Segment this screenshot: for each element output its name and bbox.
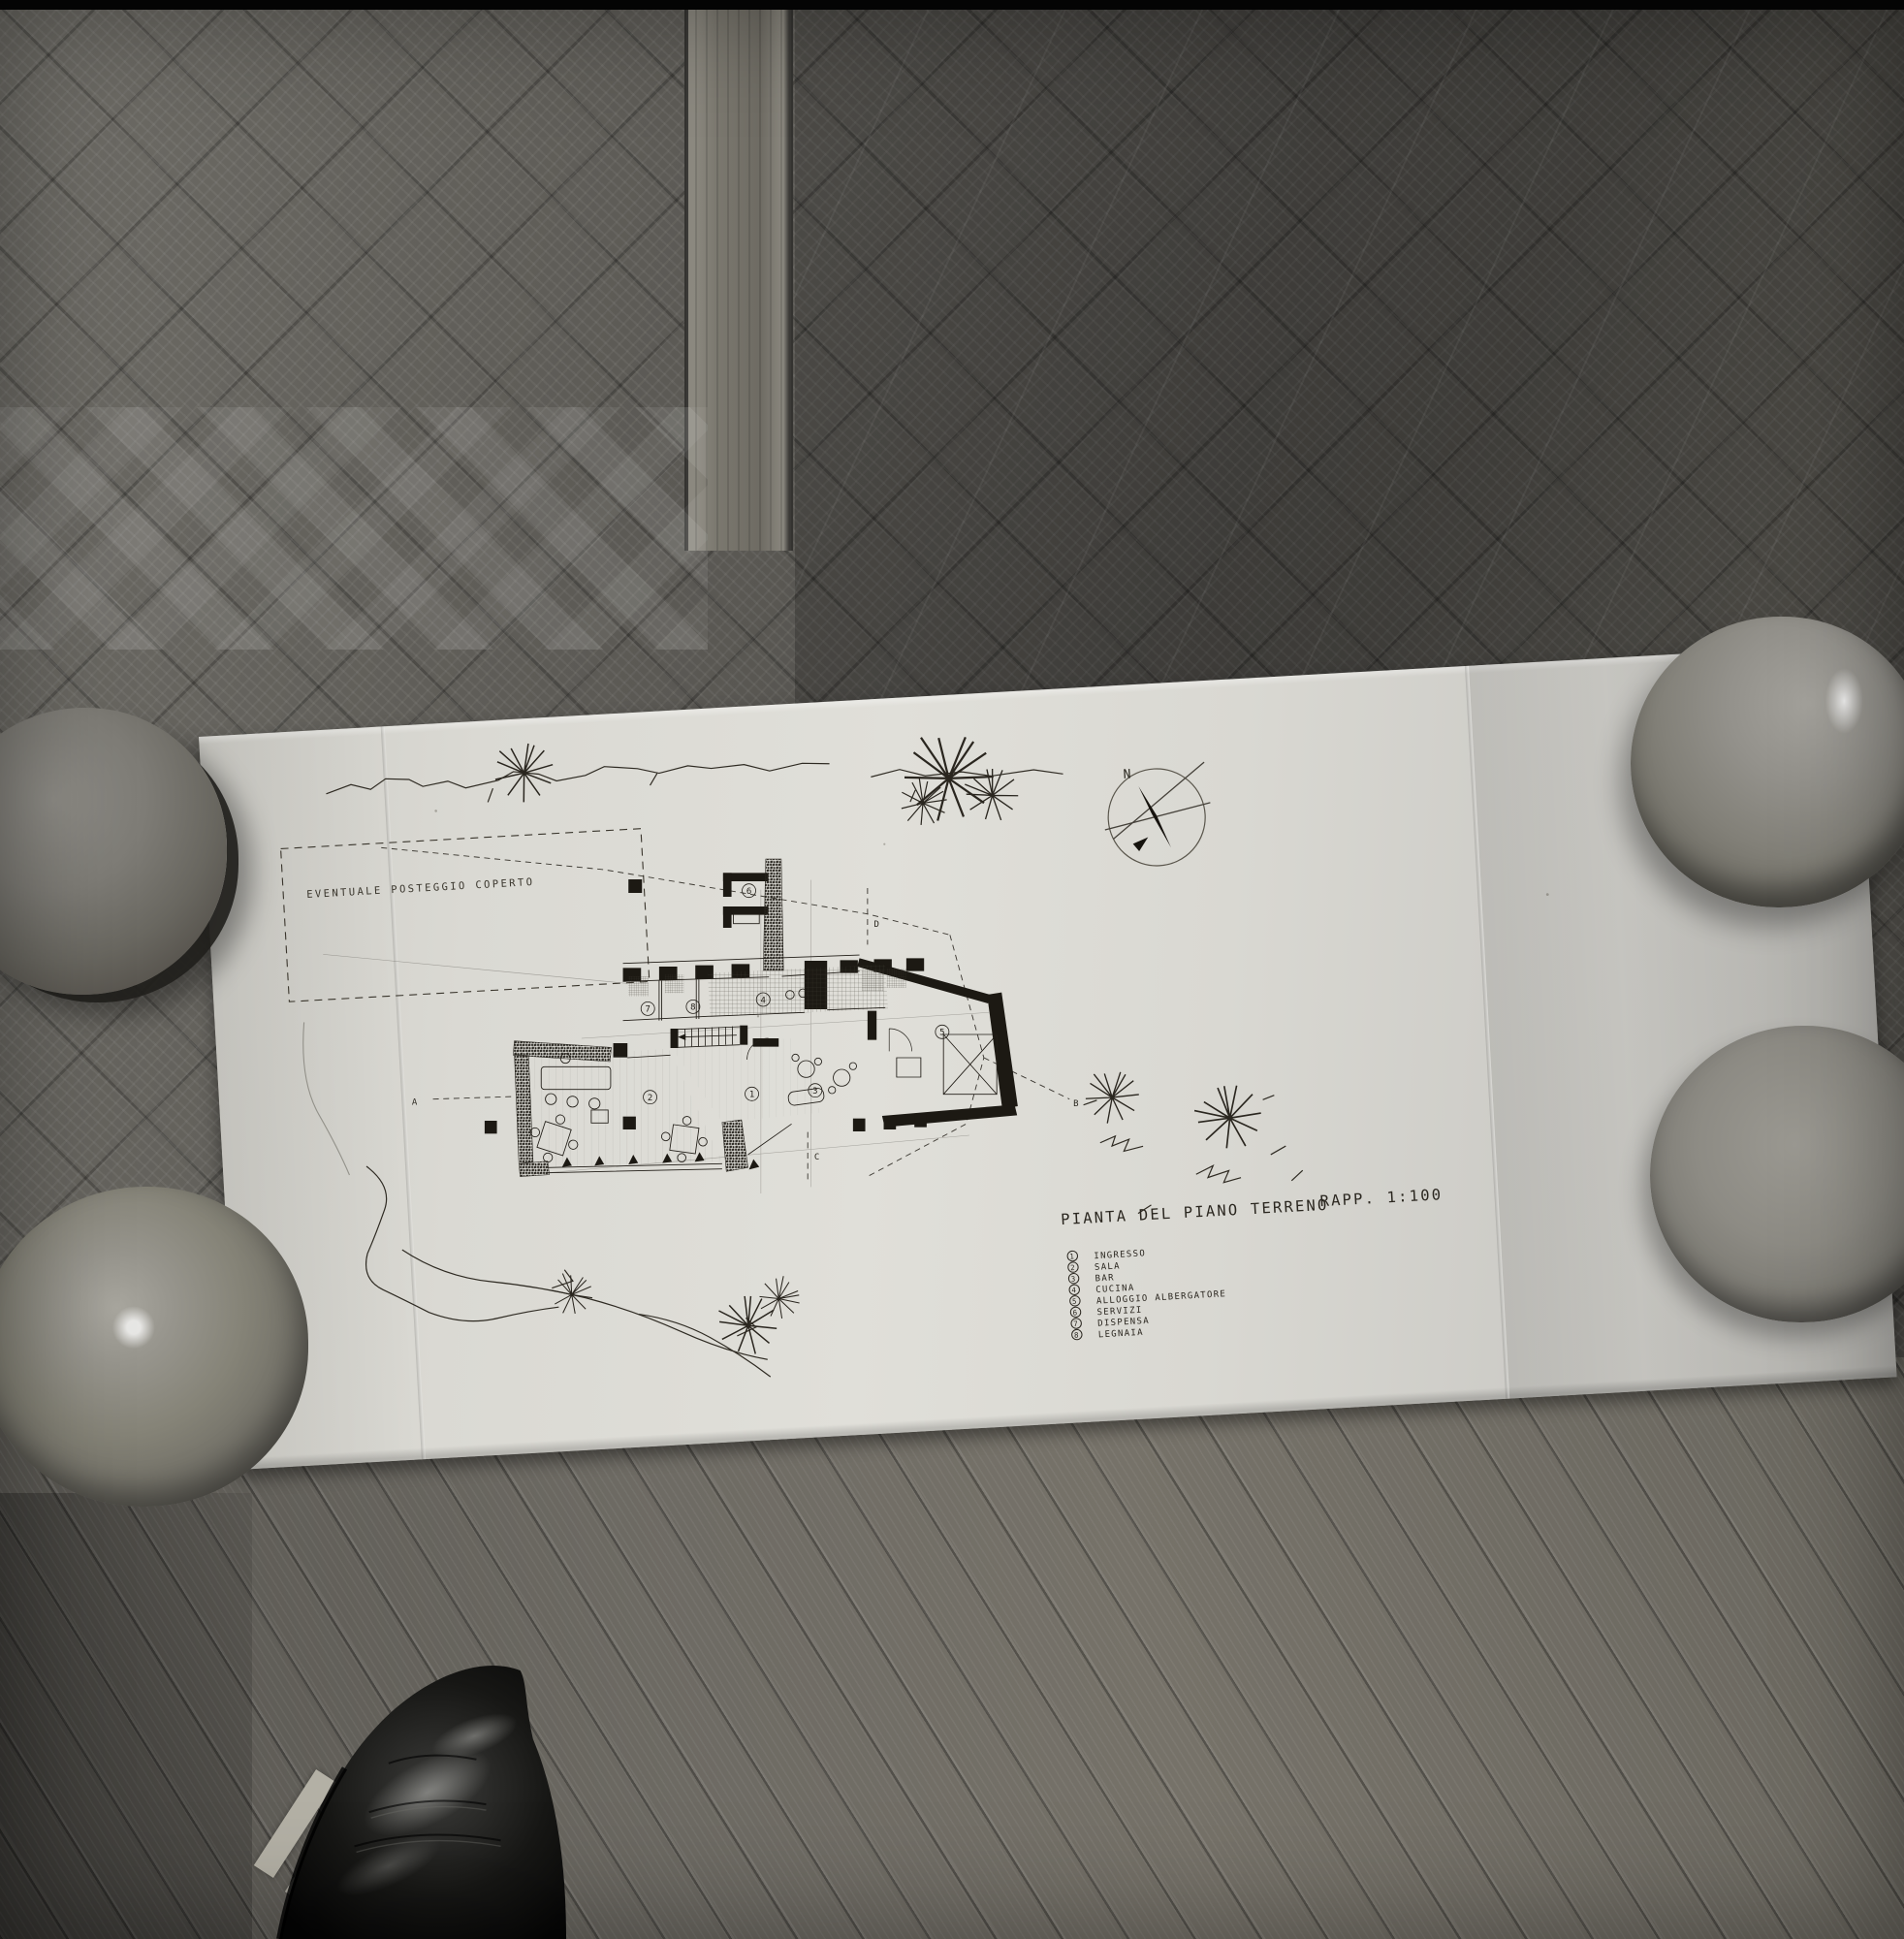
svg-text:SALA: SALA xyxy=(1095,1261,1121,1272)
compass-north-label: N xyxy=(1123,767,1131,781)
svg-text:4: 4 xyxy=(1071,1286,1077,1294)
floor-shadow-corner xyxy=(0,1493,252,1939)
svg-text:8: 8 xyxy=(1074,1330,1080,1339)
svg-text:BAR: BAR xyxy=(1095,1273,1115,1284)
svg-text:3: 3 xyxy=(1070,1275,1076,1284)
svg-text:2: 2 xyxy=(1070,1263,1076,1272)
section-marker-b: B xyxy=(1073,1099,1078,1109)
plan-scale: RAPP. 1:100 xyxy=(1319,1186,1444,1210)
svg-text:1: 1 xyxy=(749,1091,754,1100)
photograph: N EVENTUALE POSTEGGIO COPERTO xyxy=(0,0,1904,1939)
legend: 1 INGRESSO 2 SALA 3 BAR 4 CUCINA 5 ALLOG… xyxy=(1067,1243,1229,1342)
floor-plan: 6 7 8 4 5 1 2 3 D C A B xyxy=(323,847,1078,1193)
room-number-alloggio: 5 xyxy=(936,1025,949,1038)
room-number-legnaia: 8 xyxy=(686,1000,700,1013)
paper-specks xyxy=(434,742,1684,1306)
svg-text:7: 7 xyxy=(1073,1319,1079,1328)
shoe xyxy=(219,1646,617,1939)
svg-text:LEGNAIA: LEGNAIA xyxy=(1098,1328,1145,1341)
legend-row: 3 BAR xyxy=(1068,1271,1115,1286)
svg-text:INGRESSO: INGRESSO xyxy=(1094,1249,1146,1261)
room-number-dispensa: 7 xyxy=(641,1001,654,1015)
title-block: PIANTA DEL PIANO TERRENO RAPP. 1:100 1 I… xyxy=(1060,1186,1449,1342)
legend-row: 5 ALLOGGIO ALBERGATORE xyxy=(1069,1287,1226,1308)
film-edge-strip xyxy=(0,0,1904,10)
room-number-servizi: 6 xyxy=(743,884,756,898)
svg-text:7: 7 xyxy=(646,1005,651,1015)
svg-text:5: 5 xyxy=(1072,1297,1078,1306)
svg-text:6: 6 xyxy=(746,887,751,897)
terrain-sketch-bottom xyxy=(359,1089,1312,1399)
svg-text:3: 3 xyxy=(812,1087,817,1097)
section-marker-d: D xyxy=(874,920,879,930)
compass-icon: N xyxy=(1101,762,1214,869)
legend-row: 2 SALA xyxy=(1067,1259,1121,1274)
svg-text:4: 4 xyxy=(761,996,766,1005)
svg-text:SERVIZI: SERVIZI xyxy=(1096,1306,1143,1319)
parquet-chevron-band xyxy=(0,407,708,650)
svg-text:1: 1 xyxy=(1069,1252,1075,1260)
svg-text:6: 6 xyxy=(1072,1308,1078,1317)
bowl-bottom-left xyxy=(0,1187,308,1507)
svg-text:8: 8 xyxy=(690,1003,695,1013)
section-marker-c: C xyxy=(814,1153,819,1162)
tree-icon xyxy=(493,716,1028,860)
plan-title: PIANTA DEL PIANO TERRENO xyxy=(1061,1196,1329,1228)
svg-text:CUCINA: CUCINA xyxy=(1095,1284,1135,1295)
section-marker-a: A xyxy=(412,1097,418,1107)
svg-text:5: 5 xyxy=(939,1029,944,1038)
legend-row: 1 INGRESSO xyxy=(1067,1247,1147,1263)
site-area-label: EVENTUALE POSTEGGIO COPERTO xyxy=(306,876,535,901)
svg-text:2: 2 xyxy=(648,1094,652,1103)
